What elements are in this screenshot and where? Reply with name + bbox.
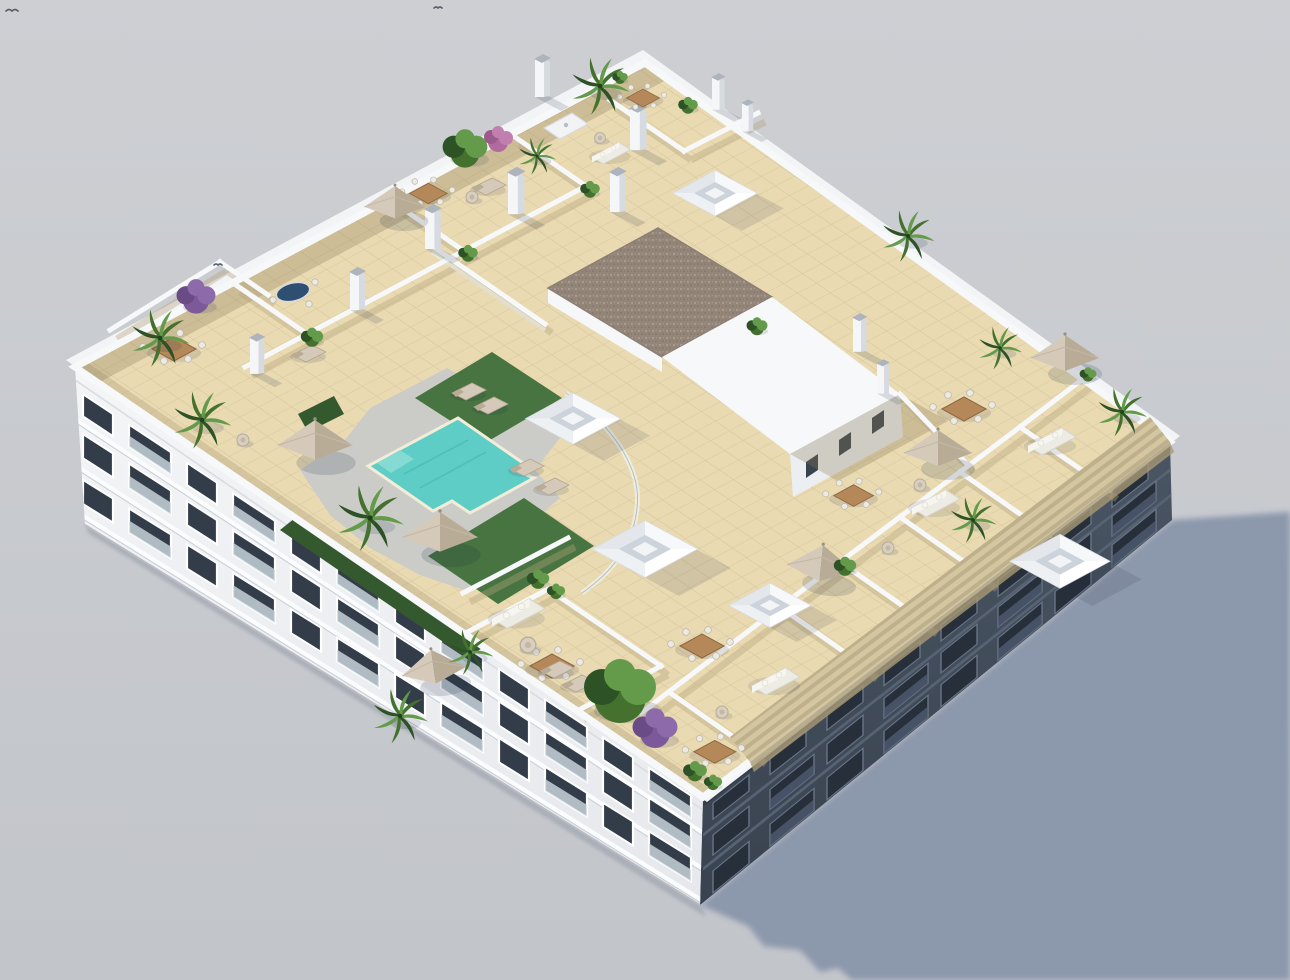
bird: [214, 264, 222, 265]
render-canvas: [0, 0, 1290, 980]
isometric-building-render: [0, 0, 1290, 980]
bird: [434, 7, 442, 8]
